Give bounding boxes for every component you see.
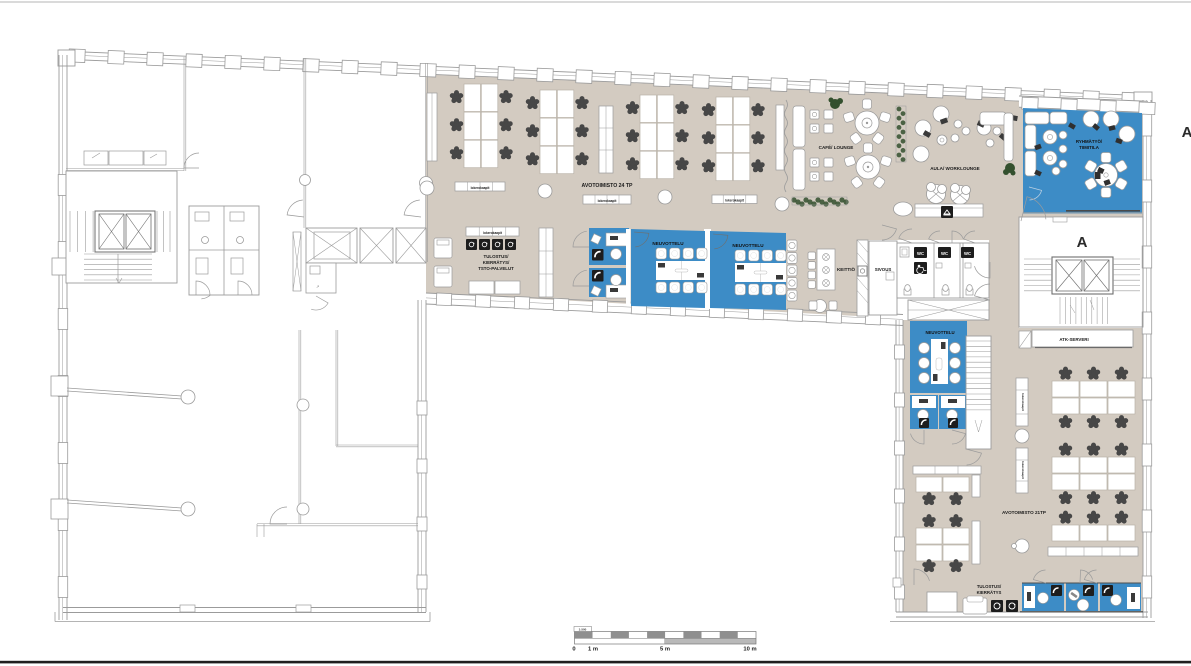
svg-text:AVOTOIMISTO 21TP: AVOTOIMISTO 21TP	[1002, 510, 1046, 515]
svg-text:TULOSTUS/: TULOSTUS/	[484, 254, 510, 259]
svg-text:A: A	[1077, 234, 1088, 251]
svg-text:TIIMITILA: TIIMITILA	[1079, 145, 1100, 150]
svg-text:1 m: 1 m	[588, 647, 598, 653]
svg-text:NEUVOTTELU: NEUVOTTELU	[925, 330, 954, 335]
svg-text:AVOTOIMISTO 24 TP: AVOTOIMISTO 24 TP	[581, 183, 633, 189]
svg-text:RYHMÄTYÖ/: RYHMÄTYÖ/	[1076, 139, 1103, 144]
svg-text:lokerokaapit: lokerokaapit	[483, 231, 503, 235]
svg-text:1:500: 1:500	[579, 628, 587, 632]
svg-text:WC: WC	[941, 251, 948, 256]
svg-text:ATK-SERVERI: ATK-SERVERI	[1059, 337, 1088, 342]
svg-text:WC: WC	[917, 251, 924, 256]
svg-text:lokerokaapit: lokerokaapit	[725, 199, 745, 203]
svg-text:↗: ↗	[316, 284, 319, 289]
svg-text:CAFÉ/ LOUNGE: CAFÉ/ LOUNGE	[819, 143, 854, 150]
svg-text:WC: WC	[964, 251, 971, 256]
svg-text:KIERRÄTYS/: KIERRÄTYS/	[483, 260, 510, 265]
svg-text:lokerokaapit: lokerokaapit	[598, 199, 618, 203]
svg-text:KIERRÄTYS: KIERRÄTYS	[977, 590, 1002, 595]
svg-text:lokerokaapit: lokerokaapit	[1021, 461, 1025, 479]
svg-text:10 m: 10 m	[743, 647, 756, 653]
svg-text:lokerokaapit: lokerokaapit	[471, 186, 491, 190]
svg-text:NEUVOTTELU: NEUVOTTELU	[732, 243, 764, 248]
svg-text:0: 0	[572, 647, 575, 653]
svg-text:KEITTIÖ: KEITTIÖ	[837, 266, 856, 272]
svg-text:TSTO-PALVELUT: TSTO-PALVELUT	[478, 266, 514, 271]
svg-text:A: A	[1182, 124, 1191, 141]
svg-text:TULOSTUS/: TULOSTUS/	[977, 584, 1002, 589]
svg-text:SIVOUS: SIVOUS	[875, 267, 892, 272]
svg-text:AULA/ WORKLOUNGE: AULA/ WORKLOUNGE	[930, 166, 980, 171]
svg-text:lokerokaapit: lokerokaapit	[1021, 393, 1025, 411]
svg-text:NEUVOTTELU: NEUVOTTELU	[652, 241, 684, 246]
svg-text:5 m: 5 m	[660, 647, 670, 653]
